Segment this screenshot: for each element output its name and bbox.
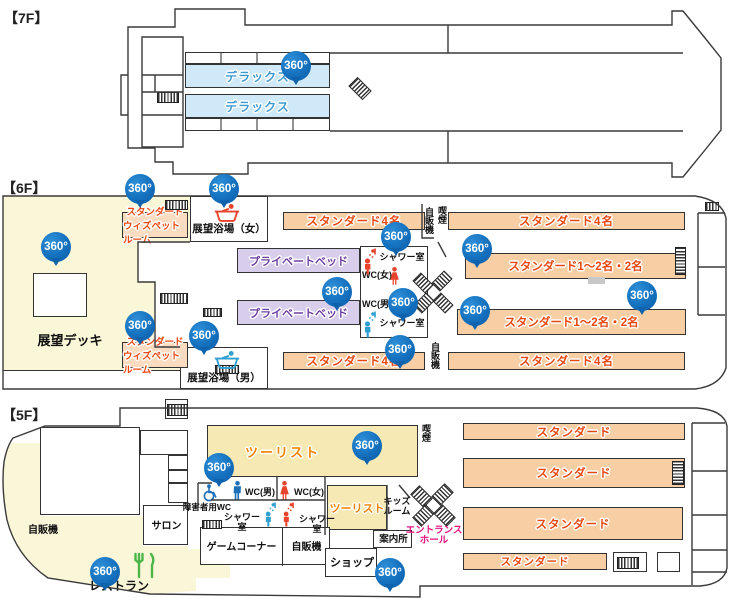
panorama-360-badge[interactable]: 360° (125, 311, 155, 341)
shower-label: シャワー室 (220, 517, 264, 528)
panorama-360-badge[interactable]: 360° (189, 321, 219, 351)
rooms-ext-2 (168, 455, 188, 470)
entrance-line2: ホール (420, 536, 449, 546)
wc-women-label: WC(女) (292, 487, 326, 498)
deck-label: 展望デッキ (30, 334, 110, 348)
smoking-vertical-label: 喫煙 (437, 206, 446, 224)
shop-label: ショップ (326, 549, 378, 578)
kids-line2: ルーム (384, 507, 411, 517)
badge-label: 360° (630, 290, 654, 302)
restaurant-cutlery-icon (131, 552, 163, 584)
panorama-360-badge[interactable]: 360° (322, 277, 352, 307)
kids-room-label: キッズ ルーム (383, 496, 411, 518)
rooms-block-5f (40, 427, 140, 515)
badge-label: 360° (355, 440, 379, 452)
stairs-icon (705, 202, 719, 211)
panorama-360-badge[interactable]: 360° (352, 431, 382, 461)
floor-label-7f: 【7F】 (4, 8, 48, 28)
panorama-360-badge[interactable]: 360° (381, 222, 411, 252)
man-icon-blue (232, 481, 243, 505)
room-deluxe-2: デラックス (185, 94, 330, 118)
room-label: ツーリスト (245, 442, 320, 461)
panorama-360-badge[interactable]: 360° (627, 281, 657, 311)
panorama-360-badge[interactable]: 360° (388, 288, 418, 318)
panorama-360-badge[interactable]: 360° (462, 234, 492, 264)
stairs-icon (157, 92, 179, 103)
deck-open-square (33, 273, 87, 317)
game-corner-label: ゲームコーナー (201, 528, 282, 566)
shop-room: ショップ (325, 548, 377, 577)
entrance-hall-label: エントランス ホール (405, 524, 463, 548)
badge-label: 360° (284, 60, 308, 72)
panorama-360-badge[interactable]: 360° (41, 232, 71, 262)
stairs-icon (410, 485, 433, 508)
panorama-360-badge[interactable]: 360° (375, 558, 405, 588)
room-standard-with-pet-2: スタンダード ウィズペットルーム (122, 342, 188, 368)
room-label: スタンダード (537, 424, 612, 440)
ladder-icon (675, 247, 686, 275)
woman-icon-red (389, 267, 400, 290)
stairs-icon (431, 270, 452, 291)
room-standard4-bottom-right: スタンダード4名 (448, 352, 685, 370)
ferry-deck-plan: 【7F】 【6F】 【5F】 デラックス デラックス スタンダード ウィズペット… (0, 0, 730, 607)
room-label: ウィズペットルーム (123, 218, 187, 246)
vending-vertical-label: 自販機 (430, 342, 439, 369)
stairs-icon (167, 404, 188, 416)
badge-label: 360° (463, 305, 487, 317)
room-standard-5f-3: スタンダード (463, 507, 683, 540)
ladder-icon (672, 461, 684, 485)
room-standard12-1: スタンダード1～2名・2名 (465, 253, 686, 279)
stairs-icon (202, 520, 222, 529)
badge-label: 360° (128, 320, 152, 332)
shower-person-icon-blue (362, 311, 377, 343)
shower-label: シャワー室 (379, 252, 425, 263)
step-platform (588, 277, 605, 284)
room-standard-5f-2: スタンダード (463, 458, 685, 488)
vending-label: 自販機 (24, 524, 62, 536)
shower-person-icon-blue (263, 502, 277, 532)
rooms-ext-1 (140, 430, 188, 455)
rooms-ext-3 (168, 470, 188, 483)
room-standard4-top-right: スタンダード4名 (448, 212, 685, 230)
bath-men-icon (213, 349, 241, 375)
room-label: ツーリスト (330, 500, 385, 516)
panorama-360-badge[interactable]: 360° (90, 557, 120, 587)
room-label: スタンダード (536, 516, 611, 532)
badge-label: 360° (465, 243, 489, 255)
panorama-360-badge[interactable]: 360° (281, 51, 311, 81)
room-label: プライベートベッド (249, 253, 348, 269)
stairs-icon (165, 200, 188, 210)
badge-label: 360° (388, 344, 412, 356)
room-label: デラックス (225, 68, 290, 85)
stairs-icon (431, 483, 454, 506)
stairs-icon (432, 292, 453, 313)
panorama-360-badge[interactable]: 360° (209, 174, 239, 204)
room-standard-with-pet-1: スタンダード ウィズペットルーム (122, 212, 188, 238)
badge-label: 360° (93, 566, 117, 578)
badge-label: 360° (128, 183, 152, 195)
badge-label: 360° (212, 183, 236, 195)
cabin-cells-bottom (185, 118, 330, 131)
shower-person-icon-red (281, 502, 295, 532)
room-label: スタンダード1～2名・2名 (508, 258, 642, 274)
room-label: ウィズペットルーム (123, 348, 187, 376)
panorama-360-badge[interactable]: 360° (125, 174, 155, 204)
room-label: スタンダード (501, 554, 570, 569)
floor-label-5f: 【5F】 (2, 405, 46, 425)
room-standard-5f-4: スタンダード (463, 553, 607, 570)
smoking-vertical-label: 喫煙 (421, 424, 430, 442)
badge-label: 360° (192, 330, 216, 342)
room-label: スタンダード4名 (519, 353, 614, 369)
vending-vertical-label: 自販機 (424, 207, 433, 234)
shower-label: シャワー室 (295, 519, 339, 530)
stairs-icon (348, 77, 371, 100)
badge-label: 360° (44, 241, 68, 253)
badge-label: 360° (207, 462, 231, 474)
rooms-ext-4 (168, 483, 188, 503)
badge-label: 360° (325, 286, 349, 298)
floor-label-6f: 【6F】 (2, 178, 46, 198)
badge-label: 360° (391, 297, 415, 309)
badge-label: 360° (378, 567, 402, 579)
stairs-icon (203, 308, 222, 317)
room-tourist-main: ツーリスト (207, 425, 418, 477)
room-private-bed-1: プライベートベッド (237, 248, 360, 273)
room-label: スタンダード1～2名・2名 (504, 314, 638, 330)
stairs-icon (160, 293, 188, 304)
room-label: デラックス (225, 98, 290, 115)
wc-men-label: WC(男) (243, 487, 277, 498)
panorama-360-badge[interactable]: 360° (460, 296, 490, 326)
stairs-icon (617, 557, 639, 569)
room-label: スタンダード (537, 465, 612, 481)
room-standard-5f-1: スタンダード (463, 423, 685, 440)
stair-box-right-2 (657, 552, 680, 572)
badge-label: 360° (384, 231, 408, 243)
room-standard12-2: スタンダード1～2名・2名 (457, 309, 686, 335)
panorama-360-badge[interactable]: 360° (385, 335, 415, 365)
shower-person-icon-red (362, 248, 377, 280)
room-label: スタンダード4名 (519, 213, 614, 229)
deck-cutout-1 (138, 242, 190, 282)
panorama-360-badge[interactable]: 360° (204, 453, 234, 483)
